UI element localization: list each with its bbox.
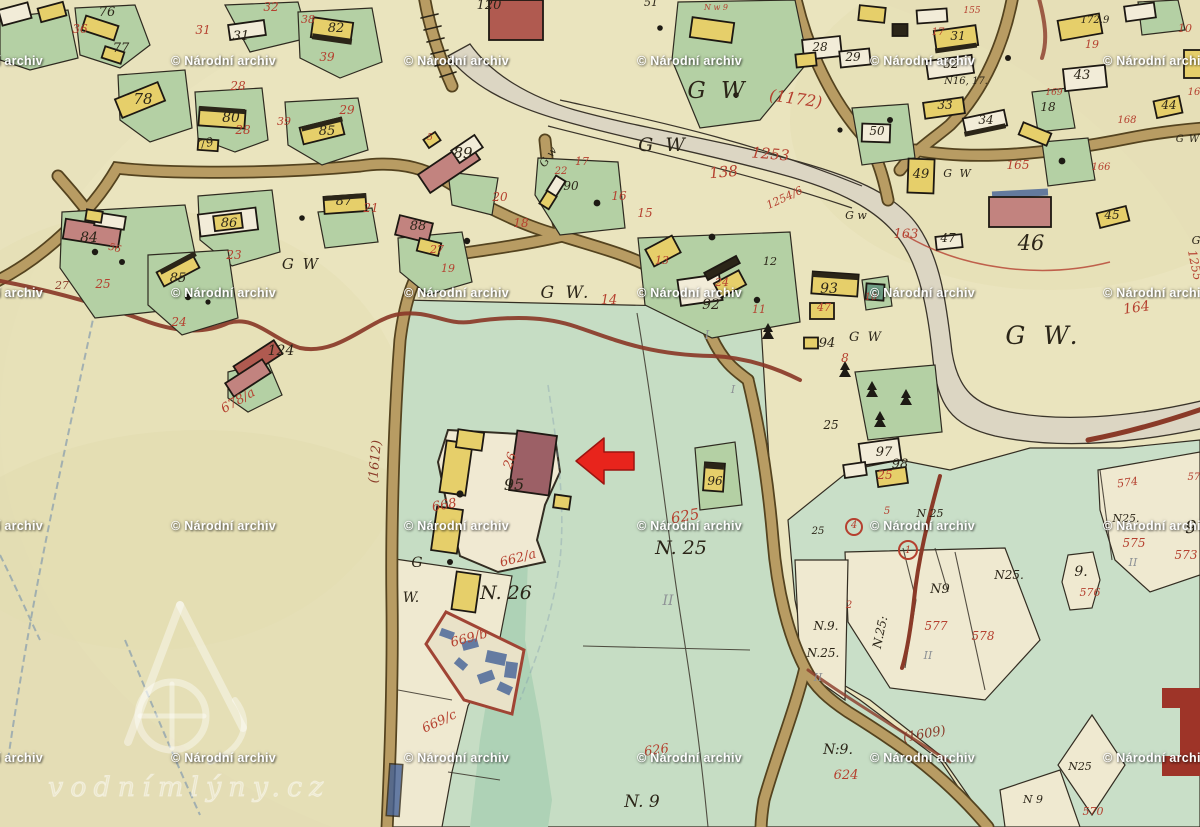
map-label: 98 [892,457,909,472]
map-label: 24 [714,276,729,289]
map-label: 168 [1117,115,1136,126]
map-label: 85 [170,271,187,286]
map-label: 4 [850,520,857,531]
map-label: G W [687,78,748,104]
map-label: 85 [319,124,336,139]
map-label: 31 [233,29,250,44]
map-label: N.25. [806,646,840,660]
map-label: 19 [1085,38,1099,51]
map-label: 45 [1103,208,1119,222]
map-label: 574 [1187,472,1200,483]
map-label: W. [403,590,419,606]
map-drawing: 7636773131323882392880287978298539218784… [0,0,1200,827]
map-label: 25 [811,526,825,537]
map-label: 95 [504,475,524,494]
map-label: 22 [554,166,568,177]
map-label: N. 9 [623,792,660,812]
map-label: 94 [819,336,836,351]
map-label: 92 [702,297,720,313]
map-label: G [1192,234,1200,247]
map-label: 46 [1017,231,1045,255]
map-label: 47 [816,301,831,314]
map-label: N. 26 [479,582,532,604]
map-label: 124 [268,343,295,359]
map-label: G W [943,167,973,180]
map-label: 28 [234,123,251,137]
map-label: 13 [655,254,669,267]
map-label: 89 [453,144,473,162]
map-label: N25. [1111,512,1139,525]
map-label: G W. [541,283,592,303]
map-label: 577 [925,619,948,633]
map-label: 12 [763,255,777,268]
map-label: N 25 [915,507,943,520]
map-label: 5 [884,506,890,517]
map-label: 34 [978,113,993,127]
map-label: 28 [811,40,828,54]
map-label: 9. [1074,564,1087,580]
map-label: 9 [1185,517,1196,538]
map-label: I [730,383,736,396]
map-label: 49 [912,167,930,182]
map-label: 138 [709,162,739,182]
map-label: 33 [937,98,953,112]
map-label: 155 [963,6,980,16]
map-label: 32 [263,0,278,14]
map-label: 28 [229,79,246,93]
map-label: 18 [1040,100,1056,114]
map-label: 44 [1160,98,1176,112]
map-label: 20 [491,190,508,204]
map-label: 31 [195,23,210,37]
map-label: 16 [1188,87,1200,98]
map-label: 16 [611,189,627,203]
map-label: 36 [72,22,88,36]
map-label: 82 [328,21,345,36]
map-label: 78 [133,90,152,108]
map-label: 1253 [751,143,791,164]
map-label: 25 [822,418,838,432]
map-label: 576 [1080,586,1101,599]
map-label: N 9 [1022,793,1043,806]
map-label: G w [845,209,867,222]
map-label: N25. [993,568,1024,582]
map-label: N.9. [813,619,839,633]
map-label: 575 [1123,536,1146,550]
map-label: 39 [319,50,335,64]
map-label: N16, 17. [943,76,988,87]
map-label: 25 [876,468,892,482]
map-label: 624 [834,768,859,783]
map-label: 76 [99,5,116,20]
map-label: II [1128,556,1138,569]
map-label: 14 [601,293,618,308]
map-label: 1 [905,545,911,556]
map-label: 172.9 [1081,15,1110,26]
map-label: II [661,593,674,609]
map-label: 570 [1083,805,1104,818]
map-label: 573 [1175,548,1198,562]
map-label: 24 [170,315,186,329]
map-label: G W [849,330,883,345]
map-label: G W [282,255,320,273]
map-label: 29 [844,50,861,64]
map-label: 51 [644,0,658,9]
map-label: I [704,328,710,342]
map-label: 97 [876,445,893,460]
map-label: 15 [637,206,652,220]
map-label: 578 [972,629,995,643]
map-label: 2 [845,600,852,611]
cadastral-map-canvas: 7636773131323882392880287978298539218784… [0,0,1200,827]
map-label: 163 [894,227,919,242]
map-label: 10 [1178,22,1192,35]
map-label: N25 [1067,760,1092,773]
map-label: 5 [427,133,433,143]
map-label: 38 [301,13,315,26]
map-label: 165 [1007,158,1030,172]
map-label: 120 [477,0,502,13]
map-label: G [411,555,422,571]
map-label: 90 [563,179,579,193]
map-label: 29 [338,103,355,117]
map-label: N w 9 [703,3,728,12]
map-label: N9 [929,582,950,597]
map-label: G W [638,134,688,156]
map-label: G W [1176,134,1200,145]
map-label: 18 [513,216,529,230]
map-label: 27 [54,279,69,292]
map-label: II [923,649,933,662]
map-label: 25 [94,277,110,291]
map-label: 166 [1091,162,1111,173]
map-label: 11 [752,303,766,316]
map-label: 32 [943,57,958,71]
map-label: 10 [865,292,878,303]
map-label: II [813,671,823,684]
map-label: 31 [950,29,965,43]
map-label: 96 [707,474,723,488]
map-label: 50 [869,124,885,138]
map-label: 93 [820,281,838,297]
map-label: N. 25 [654,537,707,559]
map-label: 27 [429,243,444,256]
logo-watermark-text: vodnímlýny.cz [48,772,330,803]
map-label: 39 [277,115,291,128]
map-label: G W. [1005,321,1082,350]
map-label: 47 [939,231,956,245]
map-label: 86 [221,216,238,231]
map-label: 17 [932,27,945,38]
map-label: 21 [362,201,378,215]
map-label: 169 [1045,88,1062,98]
map-label: 43 [1073,68,1091,83]
map-label: 17 [575,155,589,168]
map-label: 88 [410,219,427,234]
map-label: 84 [80,230,98,246]
map-label: N:9. [822,742,853,758]
map-label: 19 [441,262,455,275]
map-label: 23 [225,248,242,262]
map-label: 8 [841,351,849,365]
map-label: 77 [113,41,130,56]
map-label: 87 [336,194,353,209]
